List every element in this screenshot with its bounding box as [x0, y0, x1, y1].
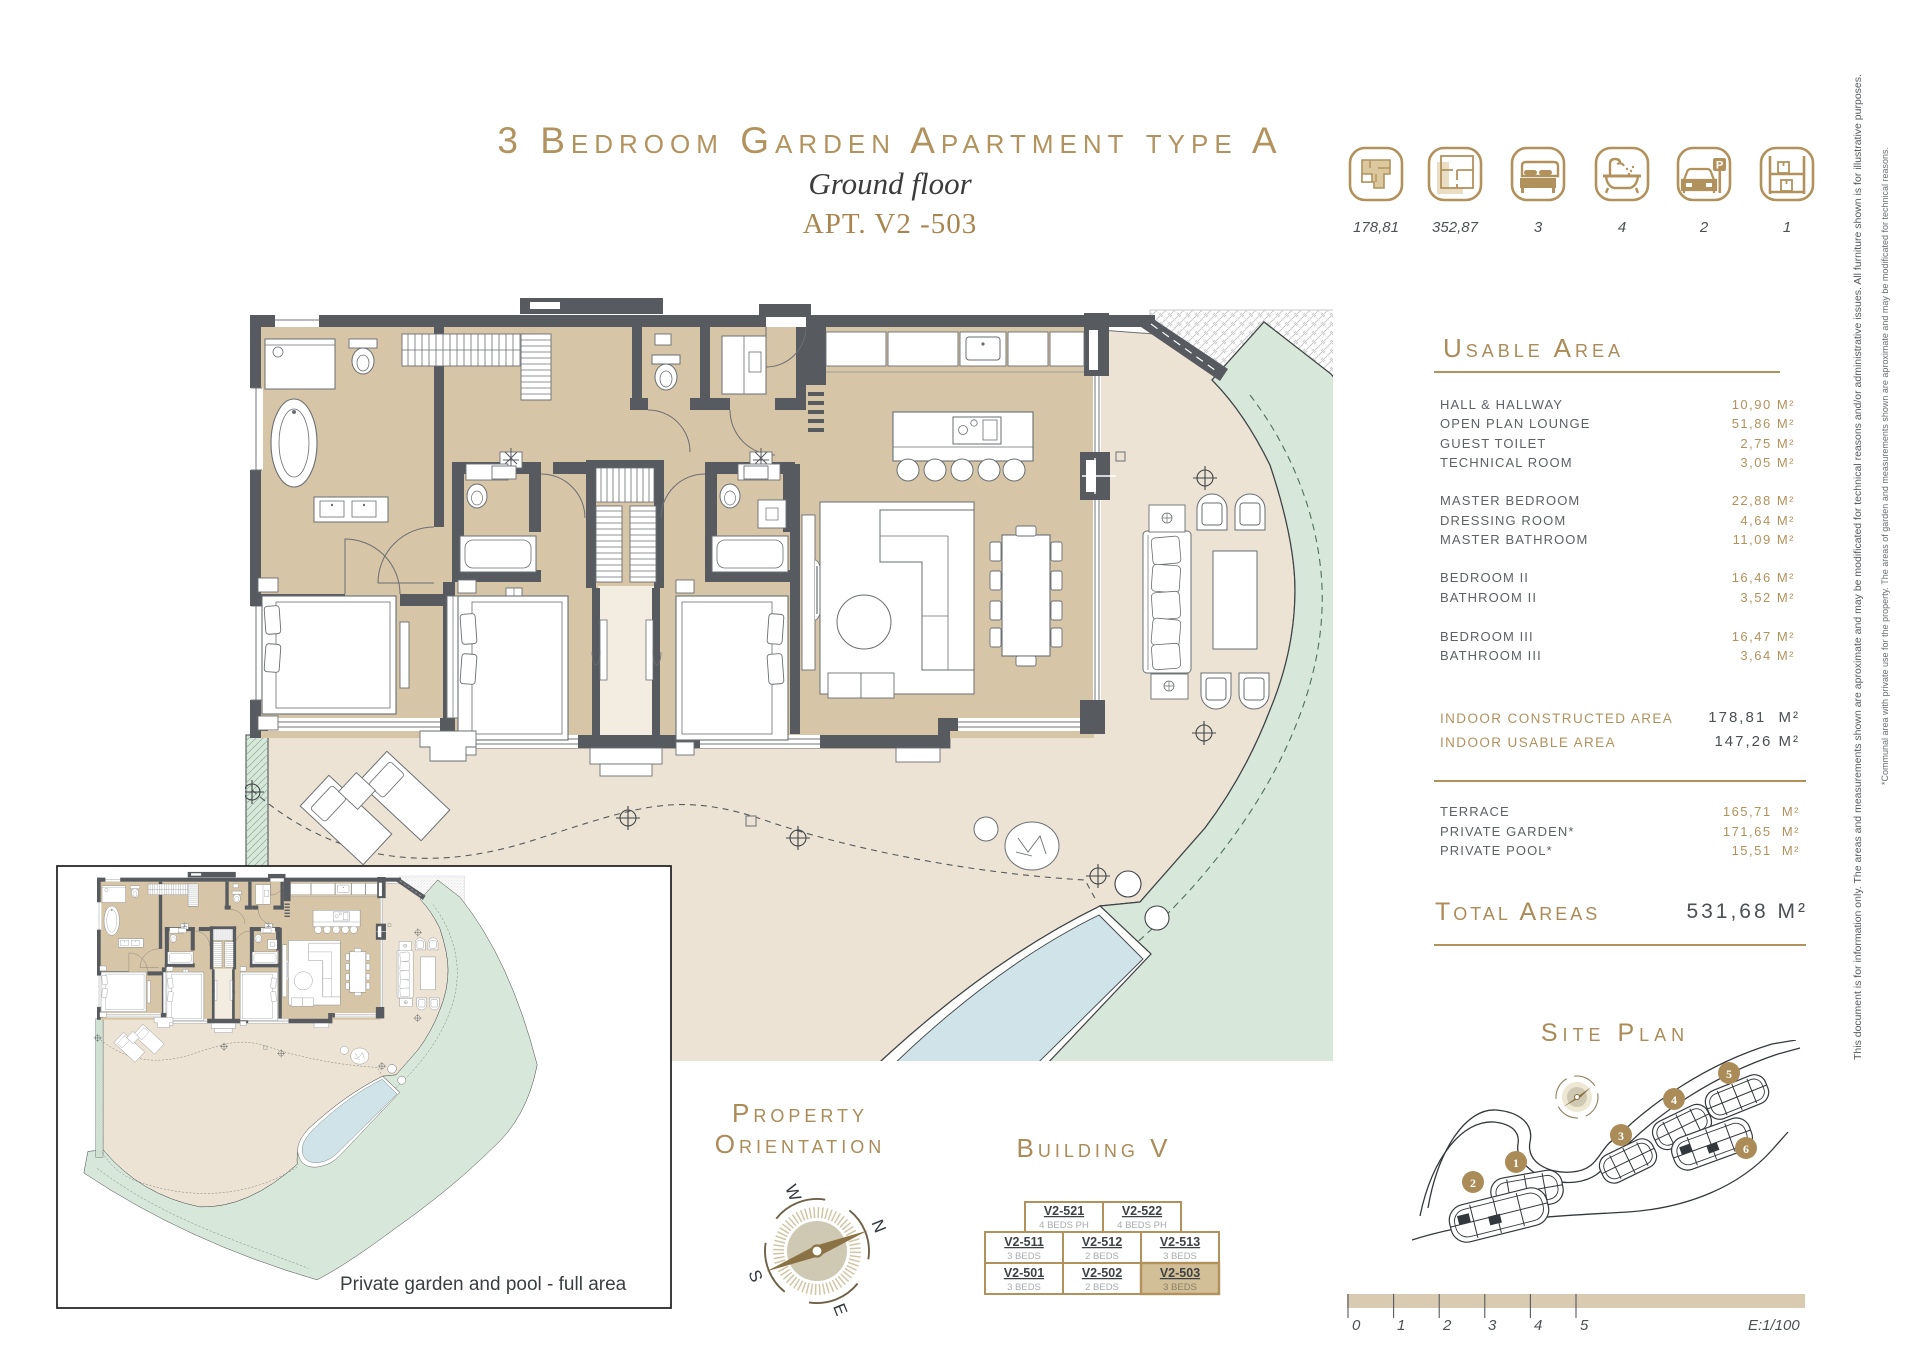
svg-text:V2-513: V2-513: [1160, 1235, 1200, 1249]
svg-text:3 BEDS: 3 BEDS: [1163, 1282, 1197, 1293]
svg-text:2: 2: [1470, 1176, 1476, 1190]
svg-text:0: 0: [1352, 1317, 1361, 1334]
svg-text:5: 5: [1726, 1067, 1732, 1081]
svg-text:3 BEDS: 3 BEDS: [1007, 1282, 1041, 1293]
svg-text:4 BEDS PH: 4 BEDS PH: [1117, 1220, 1167, 1231]
svg-text:2: 2: [1699, 219, 1709, 236]
svg-text:3 BEDS: 3 BEDS: [1163, 1251, 1197, 1262]
svg-text:2 BEDS: 2 BEDS: [1085, 1282, 1119, 1293]
svg-text:5: 5: [1580, 1317, 1589, 1334]
svg-text:V2-503: V2-503: [1160, 1266, 1200, 1280]
svg-text:V2-501: V2-501: [1004, 1266, 1044, 1280]
svg-text:352,87: 352,87: [1432, 219, 1479, 236]
svg-text:4: 4: [1534, 1317, 1542, 1334]
svg-text:P: P: [1716, 160, 1723, 172]
svg-text:3: 3: [1618, 1129, 1624, 1143]
svg-text:3 BEDS: 3 BEDS: [1007, 1251, 1041, 1262]
svg-text:1: 1: [1513, 1156, 1519, 1170]
svg-text:2 BEDS: 2 BEDS: [1085, 1251, 1119, 1262]
svg-text:V2-512: V2-512: [1082, 1235, 1122, 1249]
svg-text:1: 1: [1397, 1317, 1405, 1334]
svg-text:N: N: [868, 1217, 890, 1236]
svg-text:4: 4: [1618, 219, 1626, 236]
svg-text:S: S: [744, 1267, 766, 1285]
svg-text:E: E: [829, 1301, 851, 1319]
svg-text:V2-502: V2-502: [1082, 1266, 1122, 1280]
svg-text:V2-521: V2-521: [1044, 1204, 1084, 1218]
svg-text:4 BEDS PH: 4 BEDS PH: [1039, 1220, 1089, 1231]
svg-text:1: 1: [1783, 219, 1791, 236]
svg-text:3: 3: [1534, 219, 1543, 236]
svg-text:6: 6: [1743, 1142, 1749, 1156]
svg-text:2: 2: [1442, 1317, 1452, 1334]
svg-text:4: 4: [1671, 1093, 1677, 1107]
svg-text:3: 3: [1488, 1317, 1497, 1334]
svg-text:V2-511: V2-511: [1004, 1235, 1044, 1249]
svg-text:V2-522: V2-522: [1122, 1204, 1162, 1218]
svg-text:E:1/100: E:1/100: [1748, 1317, 1800, 1334]
